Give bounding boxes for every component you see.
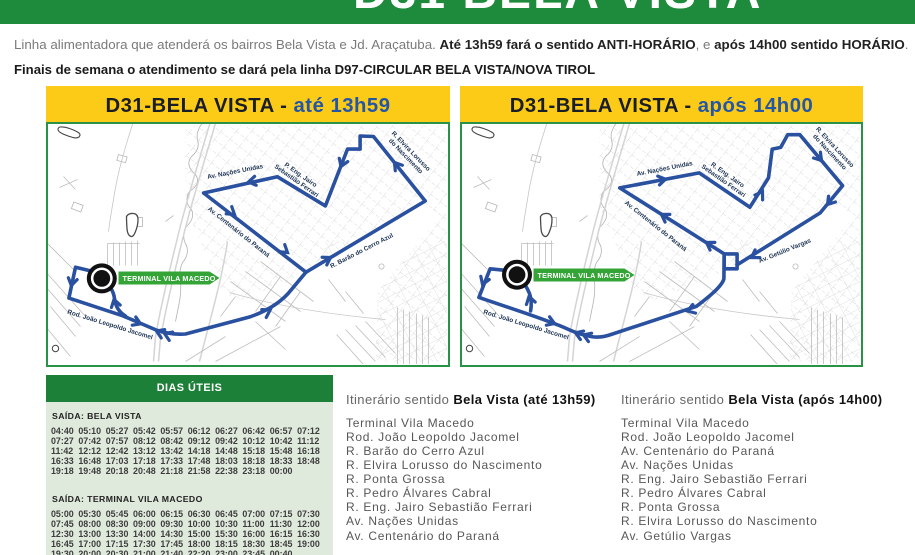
svg-text:TERMINAL VILA MACEDO: TERMINAL VILA MACEDO <box>538 271 631 280</box>
svg-text:TERMINAL VILA MACEDO: TERMINAL VILA MACEDO <box>123 274 216 283</box>
